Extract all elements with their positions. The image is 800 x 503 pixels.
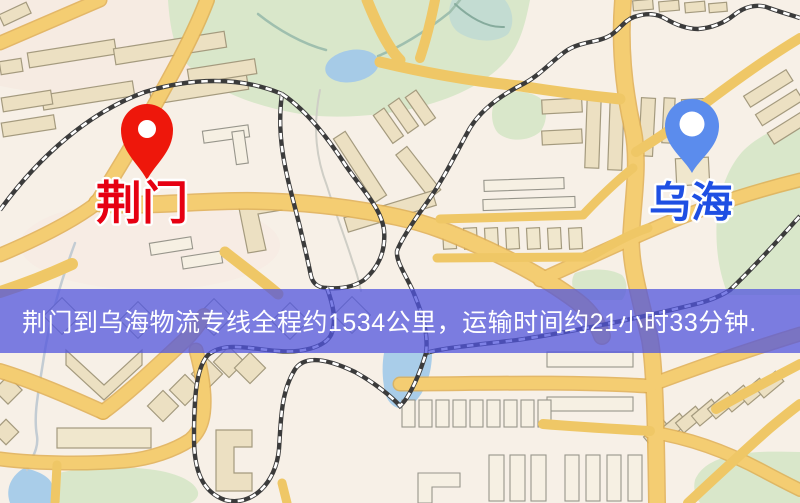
destination-city-label: 乌海 bbox=[649, 179, 733, 226]
route-info-banner: 荆门到乌海物流专线全程约1534公里，运输时间约21小时33分钟. bbox=[0, 289, 800, 353]
map-canvas: 荆门 乌海 bbox=[0, 0, 800, 503]
route-info-text: 荆门到乌海物流专线全程约1534公里，运输时间约21小时33分钟. bbox=[22, 303, 757, 339]
origin-city-label: 荆门 bbox=[96, 177, 188, 229]
logistics-route-map: 荆门 乌海 荆门到乌海物流专线全程约1534公里，运输时间约21小时33分钟. bbox=[0, 0, 800, 503]
